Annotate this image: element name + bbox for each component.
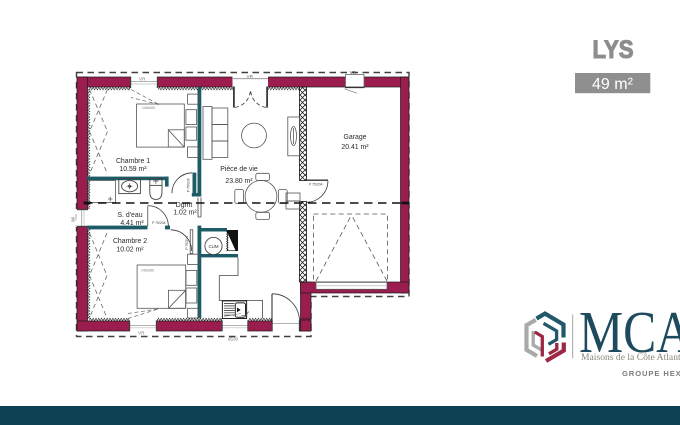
svg-text:ML: ML [229, 243, 233, 247]
svg-text:Maisons de la Côte Atlantique: Maisons de la Côte Atlantique [581, 352, 680, 363]
svg-text:VR: VR [350, 70, 357, 75]
svg-text:140x200: 140x200 [142, 106, 155, 110]
svg-text:LYS: LYS [593, 36, 634, 64]
svg-text:10.59 m²: 10.59 m² [119, 166, 147, 173]
svg-text:GROUPE HEXAŌM: GROUPE HEXAŌM [622, 369, 680, 378]
svg-text:P 75/204: P 75/204 [187, 178, 191, 192]
svg-text:9530: 9530 [228, 337, 239, 342]
svg-text:96: 96 [71, 216, 76, 222]
svg-text:VR: VR [139, 77, 146, 82]
svg-text:4.41 m²: 4.41 m² [120, 220, 144, 227]
svg-text:140x200: 140x200 [141, 269, 154, 273]
svg-text:Chambre 1: Chambre 1 [116, 158, 150, 165]
svg-text:10.02 m²: 10.02 m² [116, 247, 144, 254]
svg-text:Pièce de vie: Pièce de vie [220, 166, 258, 173]
svg-text:Chambre 2: Chambre 2 [113, 238, 147, 245]
svg-text:P 75/204: P 75/204 [185, 236, 189, 250]
svg-text:P 75/204: P 75/204 [309, 183, 323, 187]
svg-text:VR: VR [247, 74, 254, 79]
svg-text:VR: VR [138, 331, 145, 336]
svg-text:CUM: CUM [209, 244, 219, 249]
svg-text:Garage: Garage [344, 134, 367, 141]
svg-text:23.80 m²: 23.80 m² [225, 178, 253, 185]
svg-text:1.02 m²: 1.02 m² [173, 210, 197, 217]
svg-text:49 m²: 49 m² [592, 76, 634, 93]
svg-text:S. d'eau: S. d'eau [117, 212, 142, 219]
svg-text:20.41 m²: 20.41 m² [341, 144, 369, 151]
svg-text:P 75/204: P 75/204 [152, 221, 166, 225]
